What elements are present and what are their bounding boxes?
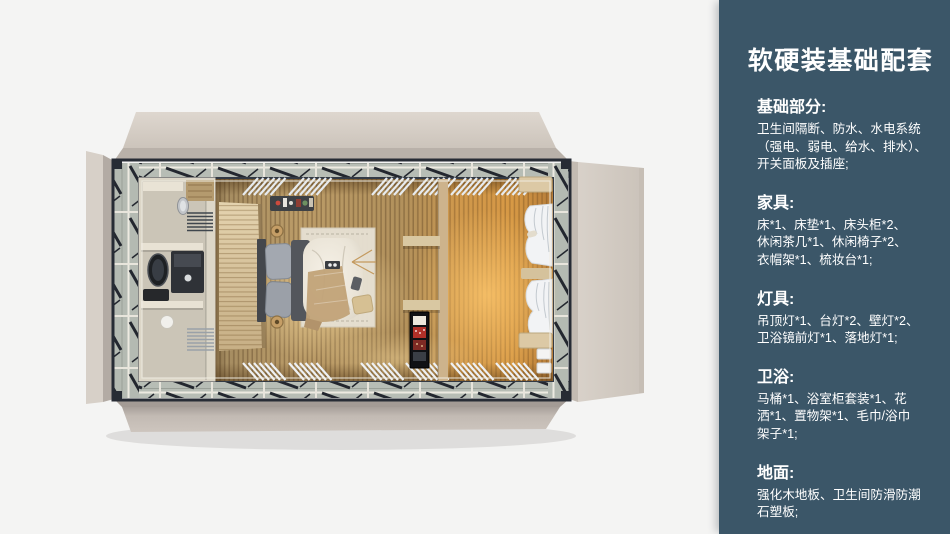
pillow — [265, 243, 293, 279]
bathroom — [140, 179, 215, 380]
section-line: 石塑板; — [757, 504, 936, 522]
section-line: （强电、弱电、给水、排水）、 — [757, 139, 936, 157]
section-flooring: 地面: 强化木地板、卫生间防滑防潮 石塑板; — [757, 463, 936, 522]
section-heading: 家具: — [757, 193, 936, 214]
wood-bench — [519, 333, 552, 348]
section-heading: 灯具: — [757, 289, 936, 310]
section-lighting: 灯具: 吊顶灯*1、台灯*2、壁灯*2、 卫浴镜前灯*1、落地灯*1; — [757, 289, 936, 348]
info-panel: 软硬装基础配套 基础部分: 卫生间隔断、防水、水电系统 （强电、弱电、给水、排水… — [719, 0, 950, 534]
panel-title: 软硬装基础配套 — [741, 44, 940, 78]
section-line: 架子*1; — [757, 426, 936, 444]
pillow — [265, 281, 293, 317]
wall-sconce — [537, 363, 551, 373]
section-basics: 基础部分: 卫生间隔断、防水、水电系统 （强电、弱电、给水、排水）、 开关面板及… — [757, 97, 936, 174]
sink-basin — [185, 275, 192, 282]
section-line: 卫生间隔断、防水、水电系统 — [757, 121, 936, 139]
wood-floor — [214, 179, 561, 384]
section-heading: 基础部分: — [757, 97, 936, 118]
section-line: 开关面板及插座; — [757, 156, 936, 174]
section-furniture: 家具: 床*1、床垫*1、床头柜*2、 休闲茶几*1、休闲椅子*2、 衣帽架*1… — [757, 193, 936, 270]
section-line: 马桶*1、浴室柜套装*1、花 — [757, 391, 936, 409]
wall-sconce — [537, 349, 551, 359]
section-heading: 地面: — [757, 463, 936, 484]
wall-shelf — [270, 196, 314, 211]
bathroom-shelf-top — [143, 182, 183, 191]
section-sanitary: 卫浴: 马桶*1、浴室柜套装*1、花 洒*1、置物架*1、毛巾/浴巾 架子*1; — [757, 367, 936, 444]
shelf-arm — [403, 300, 440, 310]
wood-bench — [519, 177, 552, 192]
towel-radiator-bottom — [187, 329, 214, 350]
interior — [140, 177, 561, 384]
section-heading: 卫浴: — [757, 367, 936, 388]
section-line: 强化木地板、卫生间防滑防潮 — [757, 487, 936, 505]
bed-tray — [325, 261, 340, 269]
section-line: 床*1、床垫*1、床头柜*2、 — [757, 217, 936, 235]
bathroom-shelf-low — [141, 301, 203, 308]
shower-head — [161, 316, 174, 329]
bathroom-shelf-mid — [141, 243, 203, 250]
headboard — [257, 239, 266, 322]
slide: 软硬装基础配套 基础部分: 卫生间隔断、防水、水电系统 （强电、弱电、给水、排水… — [0, 0, 950, 534]
bath-mat — [143, 289, 169, 301]
shelf-arm — [403, 236, 440, 246]
section-line: 洒*1、置物架*1、毛巾/浴巾 — [757, 408, 936, 426]
wood-bench — [521, 268, 552, 279]
room-top-view-render — [0, 0, 722, 534]
section-line: 衣帽架*1、梳妆台*1; — [757, 252, 936, 270]
minibar-cabinet — [410, 312, 429, 368]
section-line: 吊顶灯*1、台灯*2、壁灯*2、 — [757, 313, 936, 331]
section-line: 休闲茶几*1、休闲椅子*2、 — [757, 234, 936, 252]
section-line: 卫浴镜前灯*1、落地灯*1; — [757, 330, 936, 348]
cushion — [352, 294, 374, 314]
